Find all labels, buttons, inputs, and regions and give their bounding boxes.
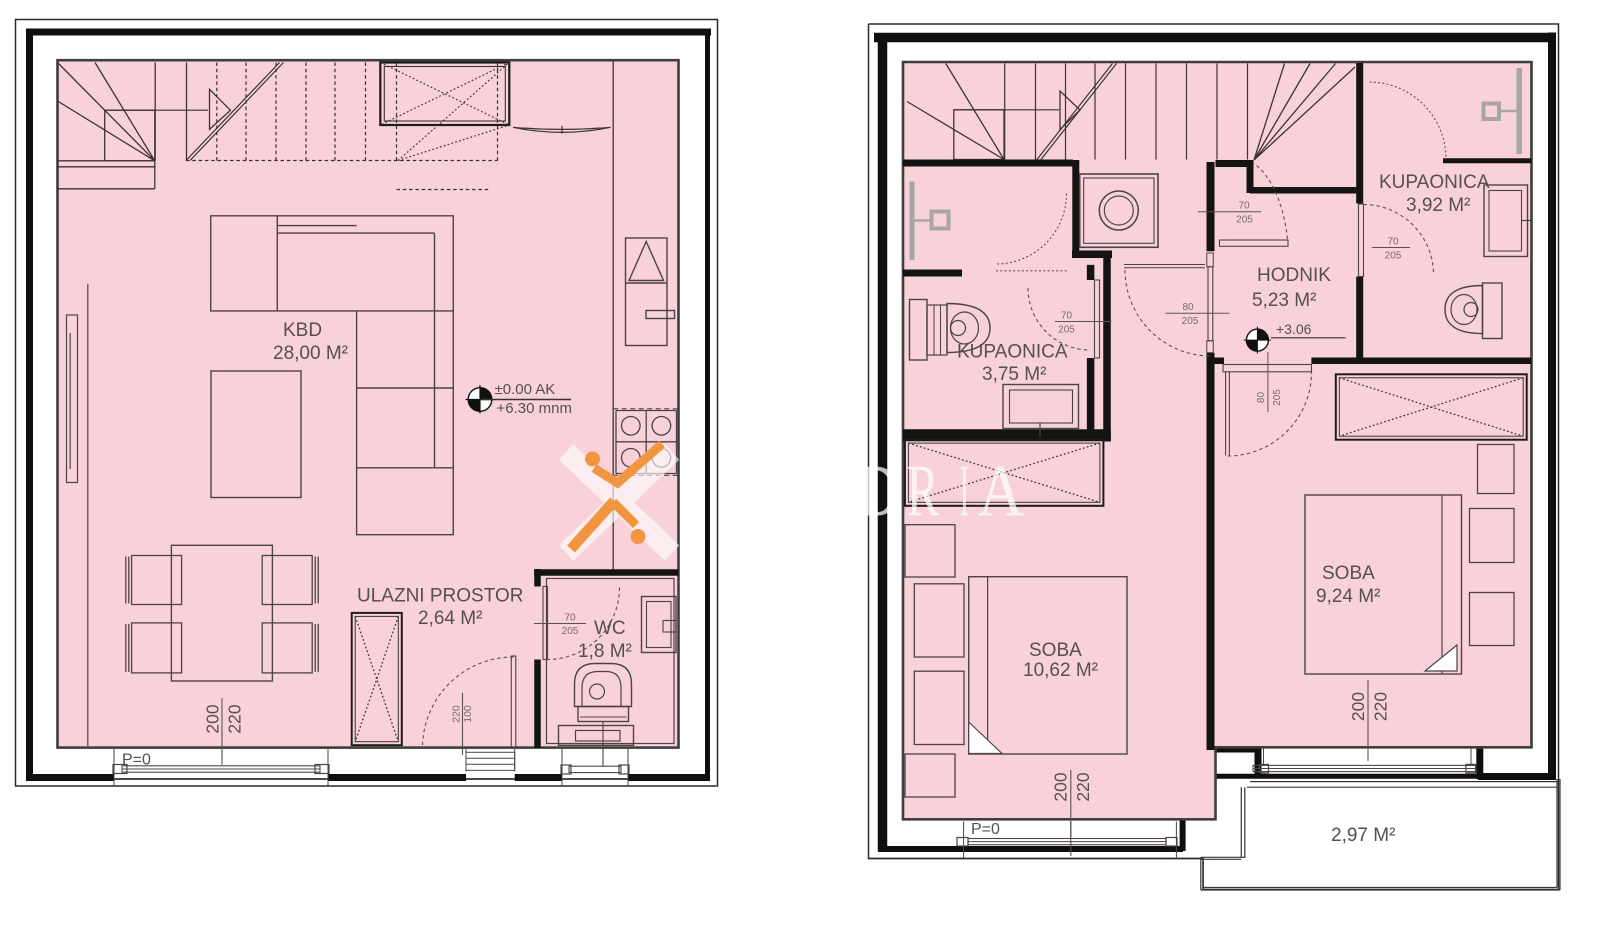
svg-text:220: 220 bbox=[225, 704, 245, 733]
svg-text:WC: WC bbox=[594, 618, 626, 639]
svg-text:KUPAONICA: KUPAONICA bbox=[957, 342, 1068, 363]
svg-text:A: A bbox=[978, 450, 1024, 532]
svg-text:205: 205 bbox=[1182, 316, 1199, 327]
svg-text:R: R bbox=[907, 449, 940, 532]
svg-text:28,00 M²: 28,00 M² bbox=[273, 343, 348, 364]
svg-text:HODNIK: HODNIK bbox=[1257, 265, 1331, 286]
svg-text:70: 70 bbox=[1387, 237, 1399, 248]
svg-text:SOBA: SOBA bbox=[1322, 563, 1375, 584]
svg-text:3,92 M²: 3,92 M² bbox=[1406, 195, 1470, 216]
svg-text:80: 80 bbox=[1256, 392, 1267, 404]
svg-text:+6.30 mnm: +6.30 mnm bbox=[497, 400, 572, 417]
svg-text:9,24 M²: 9,24 M² bbox=[1316, 586, 1380, 607]
svg-text:SOBA: SOBA bbox=[1029, 640, 1082, 661]
svg-text:P=0: P=0 bbox=[971, 821, 1000, 838]
svg-text:5,23 M²: 5,23 M² bbox=[1252, 290, 1316, 311]
svg-text:205: 205 bbox=[1272, 389, 1283, 406]
svg-text:220: 220 bbox=[1371, 692, 1391, 721]
svg-text:D: D bbox=[858, 451, 898, 532]
svg-text:10,62 M²: 10,62 M² bbox=[1023, 660, 1098, 681]
svg-text:1,8 M²: 1,8 M² bbox=[578, 641, 632, 662]
svg-text:KUPAONICA: KUPAONICA bbox=[1379, 172, 1490, 193]
svg-text:2,97 M²: 2,97 M² bbox=[1331, 825, 1395, 846]
svg-text:220: 220 bbox=[1073, 772, 1093, 801]
svg-text:200: 200 bbox=[1348, 692, 1368, 721]
svg-text:205: 205 bbox=[1058, 325, 1075, 336]
svg-text:+3.06: +3.06 bbox=[1276, 321, 1312, 337]
svg-text:100: 100 bbox=[462, 705, 474, 723]
svg-text:70: 70 bbox=[1061, 311, 1073, 322]
svg-text:70: 70 bbox=[1238, 200, 1250, 211]
svg-text:70: 70 bbox=[564, 613, 576, 624]
svg-text:ULAZNI PROSTOR: ULAZNI PROSTOR bbox=[357, 586, 523, 607]
svg-text:205: 205 bbox=[562, 626, 579, 637]
svg-text:205: 205 bbox=[1236, 214, 1253, 225]
svg-text:205: 205 bbox=[1385, 251, 1402, 262]
svg-text:200: 200 bbox=[1051, 772, 1071, 801]
svg-text:±0.00 AK: ±0.00 AK bbox=[495, 381, 556, 398]
svg-text:80: 80 bbox=[1182, 302, 1194, 313]
svg-text:I: I bbox=[960, 451, 970, 532]
svg-text:KBD: KBD bbox=[283, 320, 322, 341]
svg-text:2,64 M²: 2,64 M² bbox=[418, 608, 482, 629]
svg-text:200: 200 bbox=[203, 704, 223, 733]
svg-text:220: 220 bbox=[450, 705, 462, 723]
svg-text:3,75 M²: 3,75 M² bbox=[982, 364, 1046, 385]
